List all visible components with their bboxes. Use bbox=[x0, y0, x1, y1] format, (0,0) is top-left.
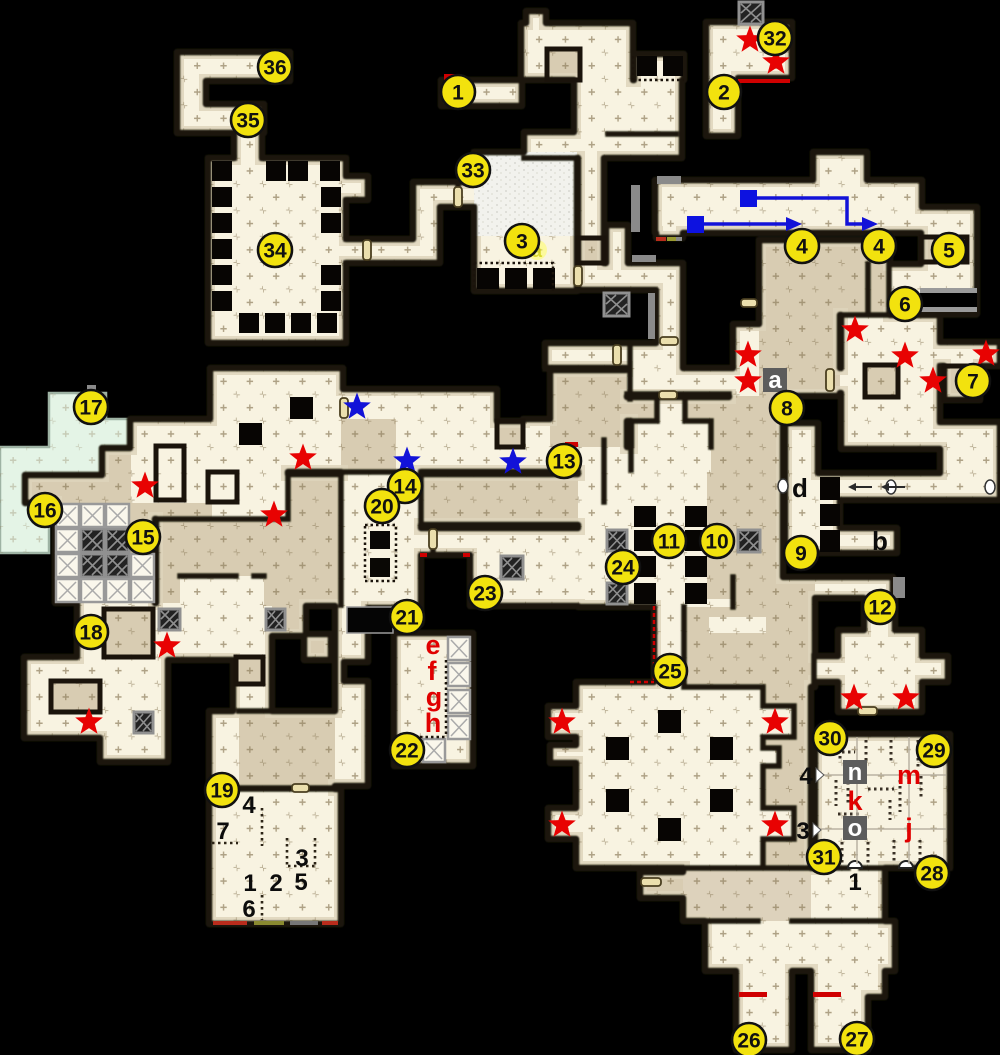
svg-text:13: 13 bbox=[552, 451, 575, 474]
svg-text:1: 1 bbox=[452, 82, 464, 105]
svg-text:16: 16 bbox=[33, 500, 56, 523]
svg-text:2: 2 bbox=[718, 82, 730, 105]
svg-text:15: 15 bbox=[131, 527, 155, 550]
svg-text:31: 31 bbox=[812, 847, 836, 870]
svg-text:4: 4 bbox=[796, 236, 808, 259]
svg-text:3: 3 bbox=[516, 231, 528, 254]
svg-text:2: 2 bbox=[269, 870, 282, 897]
svg-text:33: 33 bbox=[461, 160, 484, 183]
svg-text:17: 17 bbox=[79, 397, 102, 420]
svg-text:1: 1 bbox=[243, 870, 256, 897]
svg-text:36: 36 bbox=[263, 57, 286, 80]
svg-text:34: 34 bbox=[263, 240, 287, 263]
svg-text:28: 28 bbox=[920, 863, 944, 886]
svg-text:3: 3 bbox=[295, 845, 308, 872]
svg-text:19: 19 bbox=[210, 780, 233, 803]
svg-text:29: 29 bbox=[922, 740, 945, 763]
svg-text:h: h bbox=[425, 708, 442, 738]
svg-text:12: 12 bbox=[868, 597, 891, 620]
svg-text:5: 5 bbox=[294, 869, 307, 896]
svg-text:d: d bbox=[792, 473, 808, 503]
svg-text:9: 9 bbox=[795, 543, 807, 566]
svg-text:4: 4 bbox=[799, 763, 813, 790]
svg-text:7: 7 bbox=[967, 371, 979, 394]
svg-text:6: 6 bbox=[242, 896, 255, 923]
svg-text:10: 10 bbox=[705, 531, 728, 554]
svg-text:20: 20 bbox=[370, 496, 393, 519]
svg-text:6: 6 bbox=[899, 294, 911, 317]
svg-text:25: 25 bbox=[658, 661, 682, 684]
svg-text:22: 22 bbox=[395, 740, 418, 763]
svg-text:3: 3 bbox=[796, 818, 809, 845]
svg-text:21: 21 bbox=[395, 607, 419, 630]
svg-text:4: 4 bbox=[873, 236, 885, 259]
svg-text:b: b bbox=[872, 526, 888, 556]
svg-text:m: m bbox=[897, 760, 921, 790]
svg-text:14: 14 bbox=[393, 476, 417, 499]
svg-text:30: 30 bbox=[818, 728, 841, 751]
svg-text:35: 35 bbox=[236, 110, 260, 133]
svg-text:k: k bbox=[847, 786, 863, 816]
svg-text:27: 27 bbox=[845, 1029, 868, 1052]
svg-text:23: 23 bbox=[473, 583, 496, 606]
svg-text:24: 24 bbox=[611, 557, 635, 580]
svg-text:1: 1 bbox=[848, 869, 861, 896]
svg-text:18: 18 bbox=[79, 622, 103, 645]
svg-text:11: 11 bbox=[658, 531, 681, 554]
svg-text:4: 4 bbox=[242, 792, 256, 819]
svg-text:32: 32 bbox=[763, 28, 786, 51]
svg-text:7: 7 bbox=[216, 818, 229, 845]
svg-text:26: 26 bbox=[737, 1030, 760, 1053]
svg-text:5: 5 bbox=[943, 240, 955, 263]
svg-text:o: o bbox=[848, 815, 863, 842]
svg-text:8: 8 bbox=[781, 398, 793, 421]
svg-text:n: n bbox=[848, 759, 863, 786]
svg-text:a: a bbox=[768, 367, 782, 394]
svg-text:j: j bbox=[904, 813, 913, 843]
